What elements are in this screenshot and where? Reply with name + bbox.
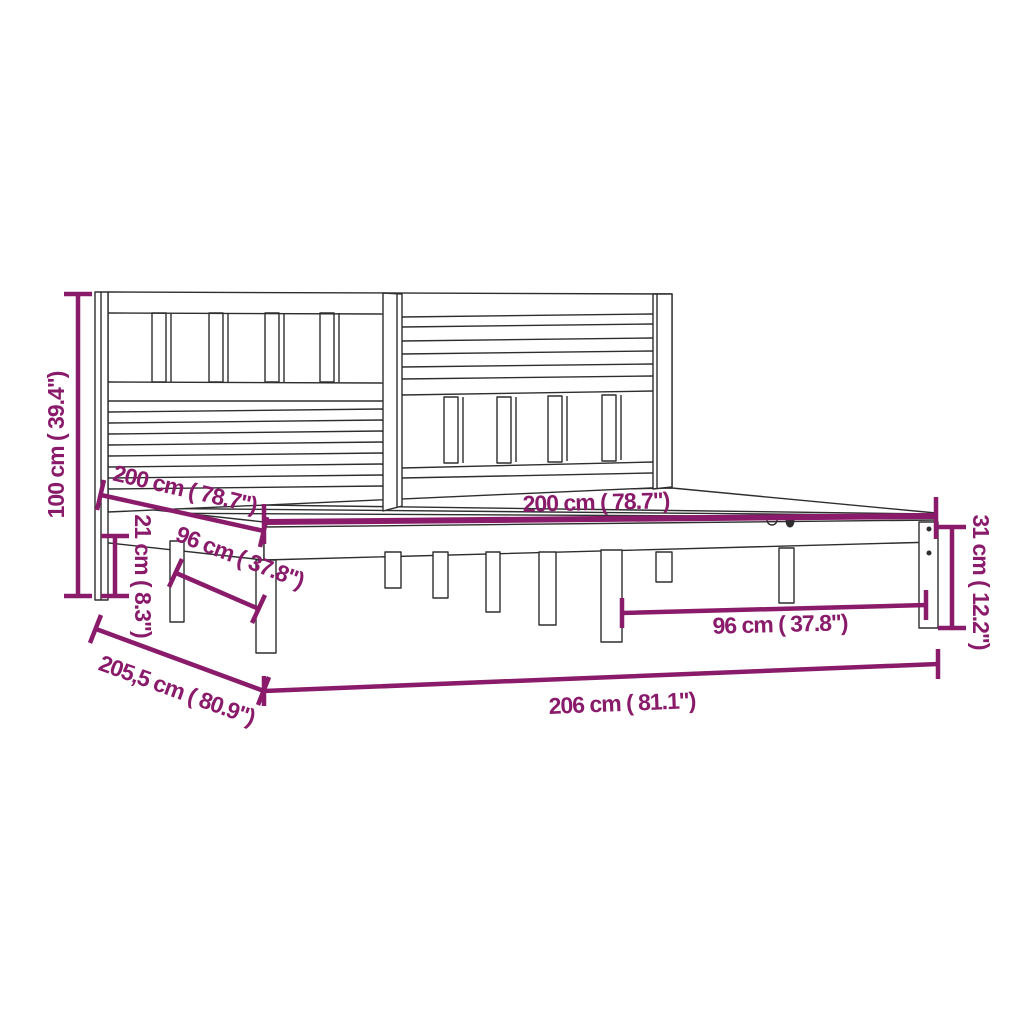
dim-label-frame-width: 206 cm ( 81.1") bbox=[548, 687, 696, 719]
dim-label-mattress-width: 200 cm ( 78.7") bbox=[522, 487, 670, 517]
dim-label-leg-spacing-right: 96 cm ( 37.8") bbox=[712, 609, 848, 639]
dim-label-ground-clearance: 21 cm ( 8.3") bbox=[130, 514, 156, 638]
headboard-left-post bbox=[95, 292, 108, 600]
dim-label-headboard-height: 100 cm ( 39.4") bbox=[43, 371, 69, 518]
dim-label-frame-depth: 205,5 cm ( 80.9") bbox=[96, 650, 259, 731]
dim-line-frame-height bbox=[938, 527, 966, 628]
bed-line-art bbox=[95, 292, 938, 653]
headboard-right-post bbox=[653, 294, 672, 489]
product-dimension-diagram: 100 cm ( 39.4") 200 cm ( 78.7") 21 cm ( … bbox=[0, 0, 1024, 1024]
bed-frame-diagram: 100 cm ( 39.4") 200 cm ( 78.7") 21 cm ( … bbox=[0, 0, 1024, 1024]
headboard-center-post bbox=[383, 293, 402, 511]
dim-label-frame-height: 31 cm ( 12.2") bbox=[968, 515, 994, 650]
